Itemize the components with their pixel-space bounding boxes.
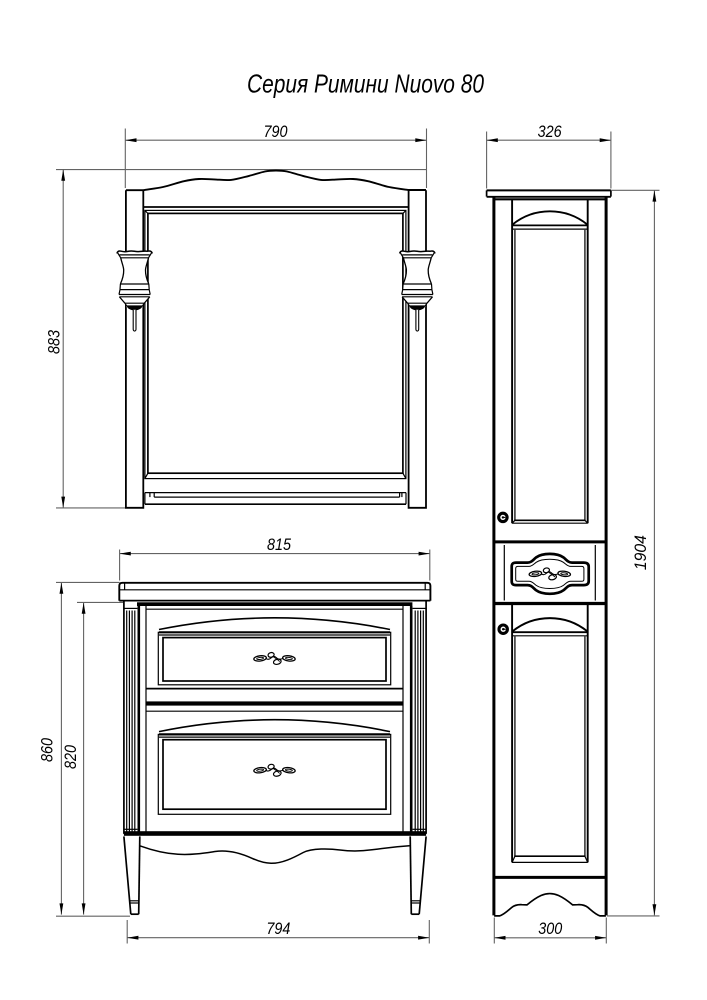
svg-text:815: 815 (267, 535, 291, 554)
svg-text:326: 326 (538, 122, 562, 141)
svg-text:Серия Римини Nuovo 80: Серия Римини Nuovo 80 (247, 69, 484, 99)
svg-text:794: 794 (266, 919, 290, 938)
svg-text:790: 790 (264, 122, 288, 141)
svg-text:1904: 1904 (631, 535, 650, 570)
svg-text:883: 883 (45, 330, 64, 354)
svg-text:820: 820 (61, 745, 80, 769)
svg-text:860: 860 (38, 738, 57, 762)
svg-text:300: 300 (538, 919, 562, 938)
